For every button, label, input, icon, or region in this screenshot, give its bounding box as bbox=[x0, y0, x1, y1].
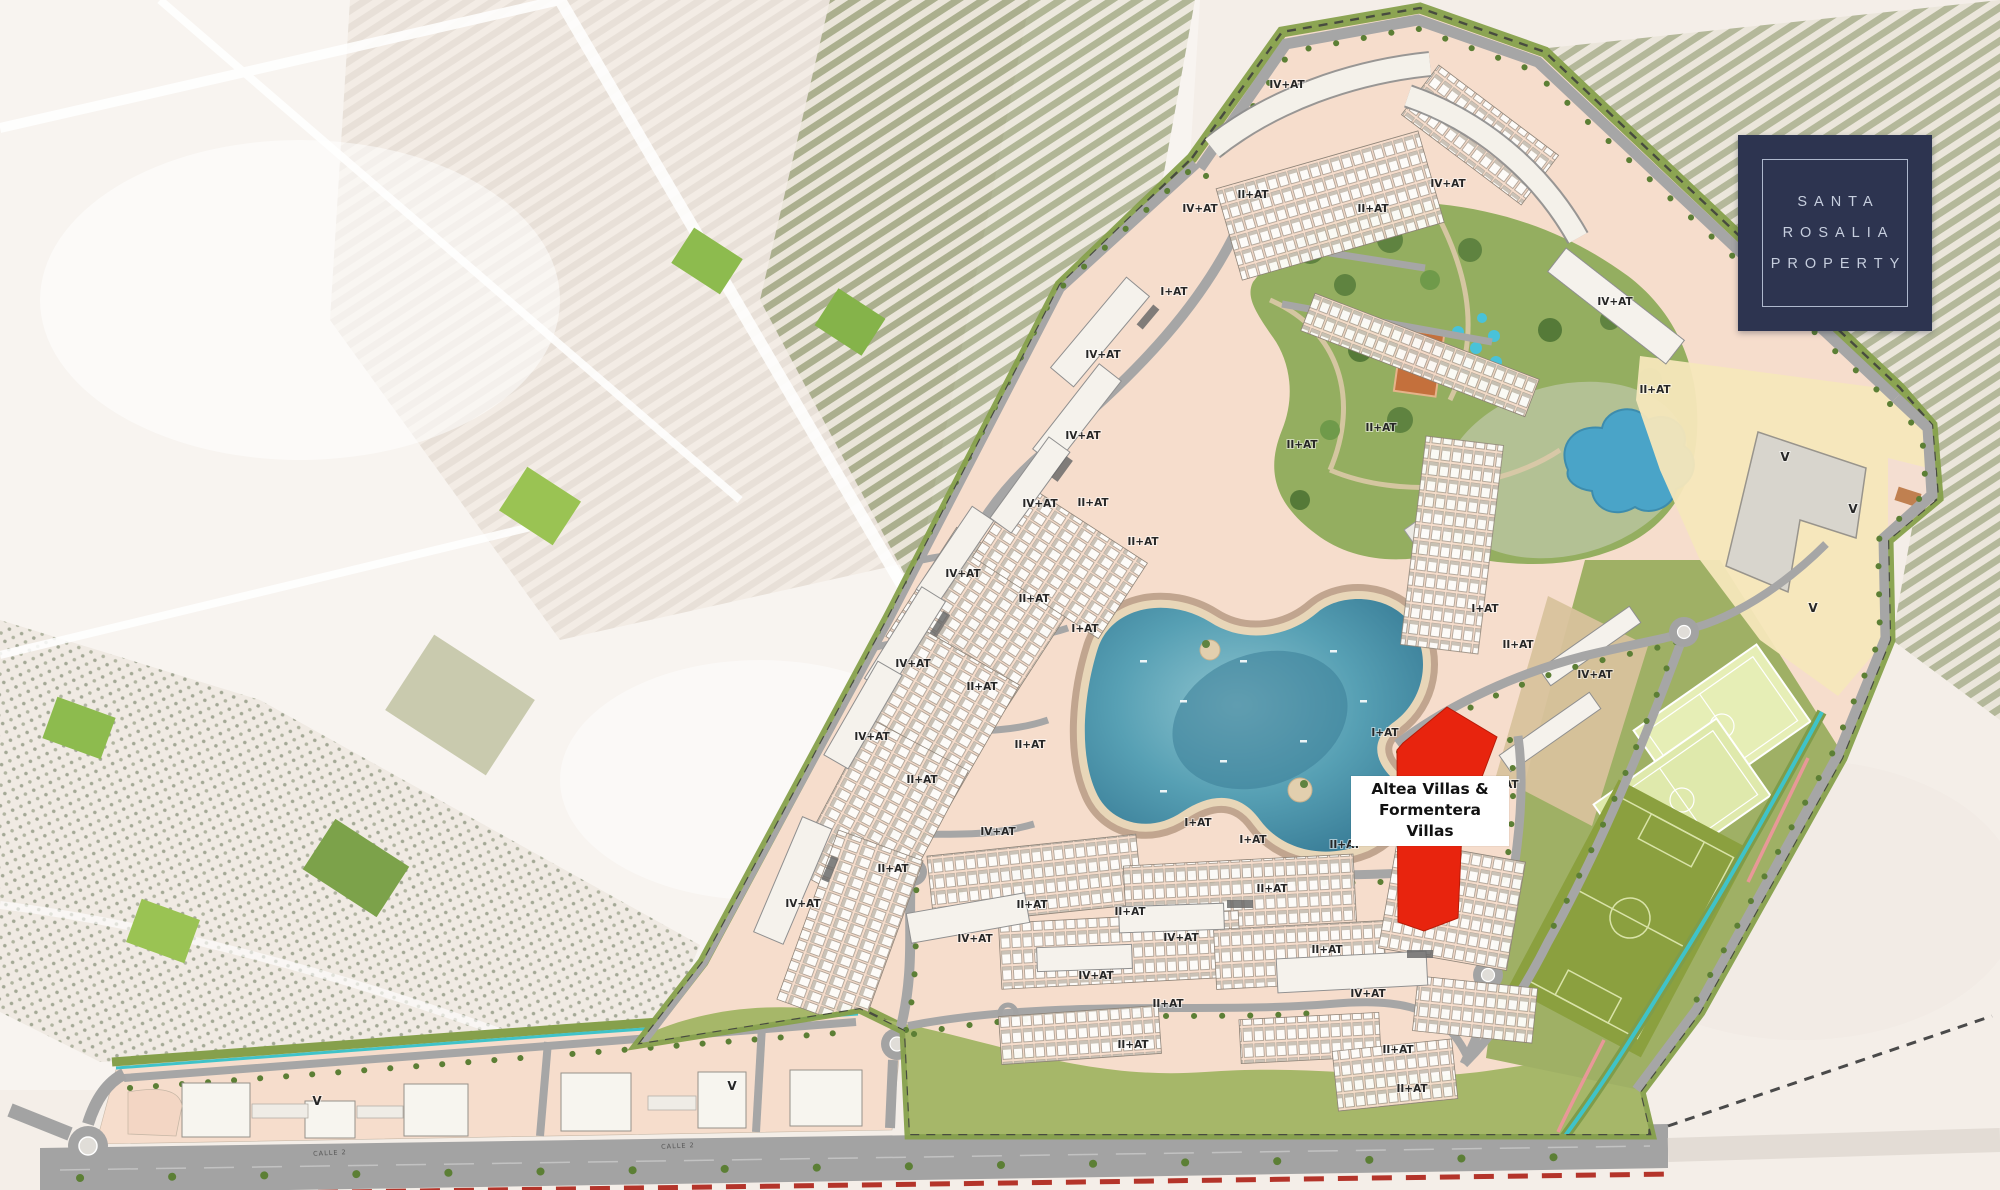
plot-type-label: IV+AT bbox=[1182, 203, 1218, 215]
plot-type-label: I+AT bbox=[1239, 834, 1267, 846]
plot-type-label: IV+AT bbox=[1577, 669, 1613, 681]
plot-type-label: I+AT bbox=[1471, 603, 1499, 615]
callout-line-2: Formentera Villas bbox=[1353, 800, 1507, 842]
logo-frame: SANTA ROSALIA PROPERTY bbox=[1762, 159, 1908, 307]
plot-type-label: IV+AT bbox=[1163, 932, 1199, 944]
plot-type-label: IV+AT bbox=[1078, 970, 1114, 982]
plot-type-label: V bbox=[1808, 601, 1818, 615]
plot-type-label: II+AT bbox=[1016, 899, 1048, 911]
plot-type-label: II+AT bbox=[1127, 536, 1159, 548]
plot-type-label: I+AT bbox=[1160, 286, 1188, 298]
plot-type-label: IV+AT bbox=[1597, 296, 1633, 308]
plot-type-label: II+AT bbox=[1014, 739, 1046, 751]
plot-type-label: IV+AT bbox=[1022, 498, 1058, 510]
plot-type-label: IV+AT bbox=[945, 568, 981, 580]
plot-type-label: II+AT bbox=[877, 863, 909, 875]
logo-line-2: ROSALIA bbox=[1776, 225, 1895, 241]
plot-type-label: IV+AT bbox=[785, 898, 821, 910]
plot-type-label: II+AT bbox=[1639, 384, 1671, 396]
plot-type-label: IV+AT bbox=[957, 933, 993, 945]
plot-type-label: I+AT bbox=[1371, 727, 1399, 739]
logo-line-1: SANTA bbox=[1790, 194, 1879, 210]
highlight-callout: Altea Villas & Formentera Villas bbox=[1351, 776, 1509, 846]
plot-type-label: IV+AT bbox=[1065, 430, 1101, 442]
plot-type-label: II+AT bbox=[1382, 1044, 1414, 1056]
plot-type-label: V bbox=[1848, 502, 1858, 516]
plot-type-label: I+AT bbox=[1071, 623, 1099, 635]
plot-type-label: II+AT bbox=[1357, 203, 1389, 215]
plot-type-label: IV+AT bbox=[895, 658, 931, 670]
plot-type-label: IV+AT bbox=[1269, 79, 1305, 91]
logo-line-3: PROPERTY bbox=[1764, 256, 1907, 272]
plot-type-label: II+AT bbox=[1256, 883, 1288, 895]
plot-type-label: II+AT bbox=[1018, 593, 1050, 605]
plot-type-label: V bbox=[1780, 450, 1790, 464]
plot-type-label: II+AT bbox=[1502, 639, 1534, 651]
plot-type-label: II+AT bbox=[1286, 439, 1318, 451]
plot-type-label: IV+AT bbox=[1350, 988, 1386, 1000]
plot-type-label: I+AT bbox=[1184, 817, 1212, 829]
plot-type-label: II+AT bbox=[1114, 906, 1146, 918]
plot-type-label: II+AT bbox=[1311, 944, 1343, 956]
plot-type-label: II+AT bbox=[906, 774, 938, 786]
plot-type-label: IV+AT bbox=[854, 731, 890, 743]
plot-type-label: V bbox=[312, 1094, 322, 1108]
plot-type-label: II+AT bbox=[1077, 497, 1109, 509]
plot-type-label: II+AT bbox=[1152, 998, 1184, 1010]
plot-type-label: V bbox=[727, 1079, 737, 1093]
plot-type-label: II+AT bbox=[1396, 1083, 1428, 1095]
plot-type-label: II+AT bbox=[1237, 189, 1269, 201]
plot-type-label: II+AT bbox=[966, 681, 998, 693]
brand-logo: SANTA ROSALIA PROPERTY bbox=[1738, 135, 1932, 331]
plot-type-label: II+AT bbox=[1117, 1039, 1149, 1051]
masterplan-canvas: IV+ATIV+ATIV+ATIV+ATIV+ATIV+ATIV+ATIV+AT… bbox=[0, 0, 2000, 1190]
plot-type-label: IV+AT bbox=[1085, 349, 1121, 361]
masterplan-map: IV+ATIV+ATIV+ATIV+ATIV+ATIV+ATIV+ATIV+AT… bbox=[0, 0, 2000, 1190]
plot-type-label: IV+AT bbox=[980, 826, 1016, 838]
plot-type-label: IV+AT bbox=[1430, 178, 1466, 190]
callout-line-1: Altea Villas & bbox=[1353, 779, 1507, 800]
plot-type-label: II+AT bbox=[1365, 422, 1397, 434]
